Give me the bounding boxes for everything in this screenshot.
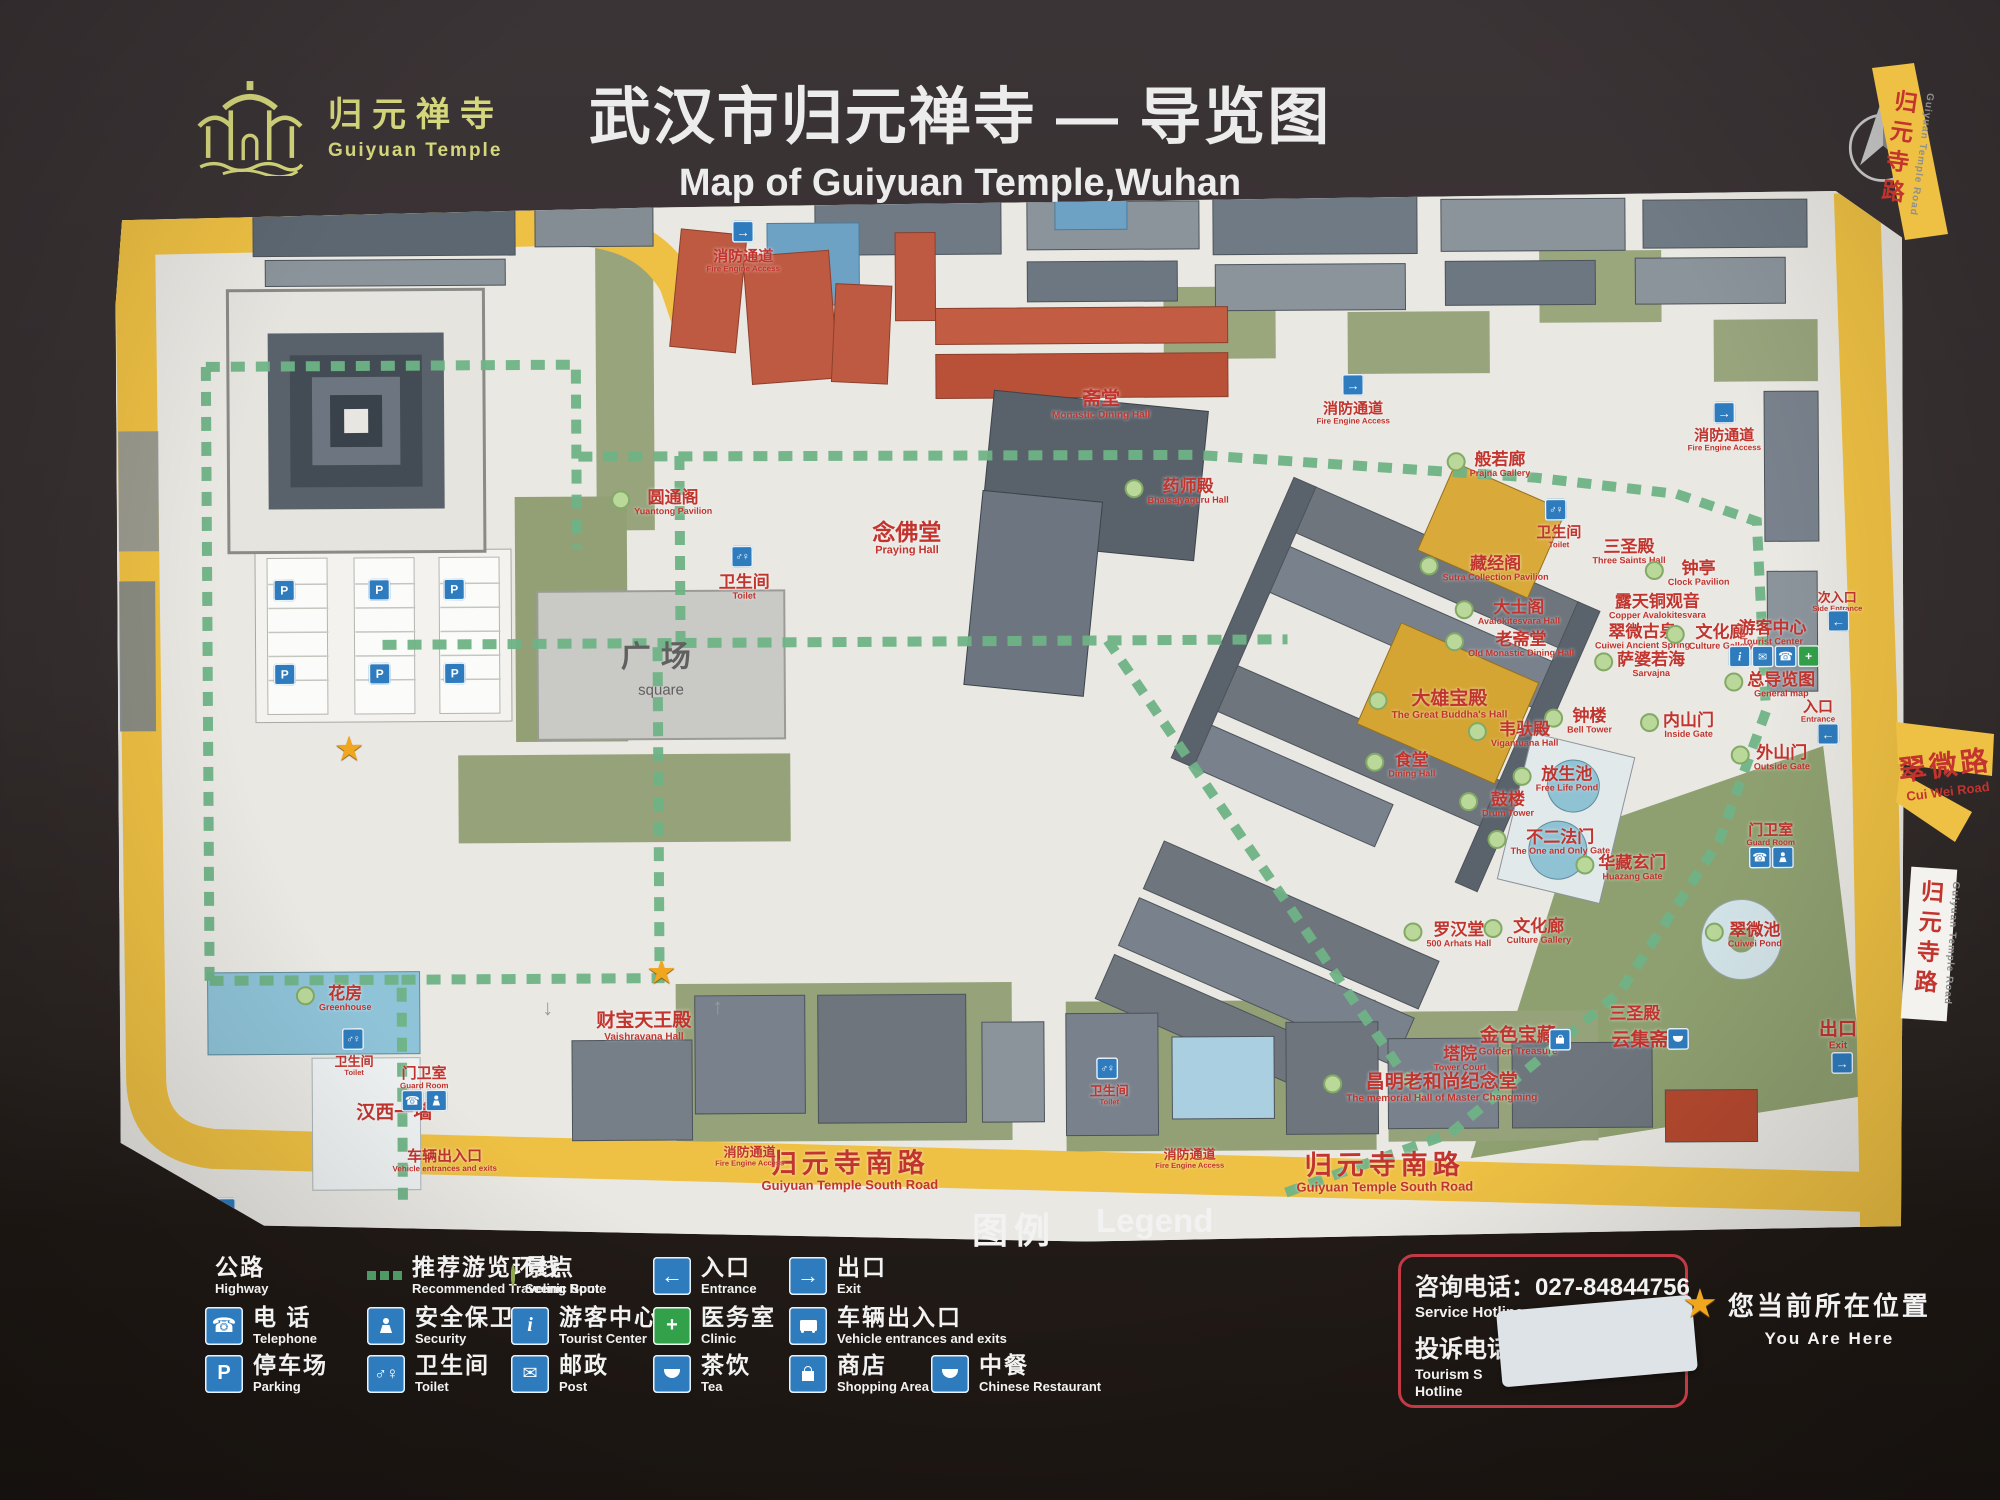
map-label-en: Fire Engine Access [1155, 1162, 1224, 1171]
walkway-arrow-icon: ↓ [542, 995, 553, 1021]
legend-item-en: Parking [253, 1380, 328, 1393]
title-cn: 武汉市归元禅寺 — 导览图 [560, 66, 1360, 156]
map-label: 般若廊Prajna Gallery [1447, 451, 1531, 480]
legend-item-zh: 入口 [701, 1256, 757, 1279]
map-label: 塔院Tower Court [1434, 1045, 1487, 1073]
you-are-here-star-icon: ★ [1682, 1286, 1718, 1322]
map-label-en: Bell Tower [1567, 726, 1612, 736]
legend-item-en: Highway [215, 1282, 268, 1295]
legend-item-spot: 景点Scenic Spot [511, 1256, 599, 1295]
legend-item-bus: 车辆出入口Vehicle entrances and exits [789, 1306, 1007, 1345]
temple-map-sign: 归元禅寺 Guiyuan Temple 武汉市归元禅寺 — 导览图 Map of… [0, 0, 2000, 1500]
map-label: 昌明老和尚纪念堂The memorial Hall of Master Chan… [1323, 1072, 1537, 1105]
map-label-zh: 门卫室 [400, 1066, 449, 1082]
entrance-icon: ← [653, 1257, 691, 1295]
map-label-en: Inside Gate [1663, 730, 1714, 740]
map-label: 大雄宝殿The Great Buddha's Hall [1368, 689, 1507, 721]
scenic-spot-dot-icon [1483, 919, 1502, 938]
legend-item-en: Exit [837, 1282, 887, 1295]
you-are-here-star-icon: ★ [334, 729, 365, 769]
map-label-zh: 总导览图 [1747, 671, 1815, 690]
legend-item-en: Post [559, 1380, 609, 1393]
map-label-en: Outside Gate [1754, 762, 1810, 772]
bus-icon [214, 1198, 236, 1220]
scenic-spot-dot-icon [1455, 600, 1474, 619]
wc-icon: ♂♀ [731, 546, 753, 568]
tea-icon [653, 1355, 691, 1393]
map-label: 消防通道Fire Engine Access [1687, 428, 1761, 453]
scenic-spot-dot-icon [1487, 830, 1506, 849]
map-label-zh: 入口 [1801, 700, 1835, 716]
post-icon: ✉ [1752, 645, 1774, 667]
scenic-spot-dot-icon [1459, 792, 1478, 811]
map-label-zh: 门卫室 [1746, 823, 1795, 839]
map-label-zh: 三圣殿 [1609, 1005, 1660, 1024]
entrance-icon: ← [1817, 723, 1839, 745]
map-label: 金色宝藏Golden Treasure [1478, 1026, 1557, 1058]
legend-item-highway: 公路Highway [205, 1256, 268, 1295]
legend-item-en: Security [415, 1332, 515, 1345]
map-label-en: Free Life Pond [1536, 784, 1599, 794]
map-label: 出口Exit [1819, 1020, 1857, 1052]
walkway-arrow-icon: ↑ [712, 994, 723, 1020]
scenic-spot-dot-icon [1645, 561, 1664, 580]
scenic-spot-dot-icon [1731, 745, 1750, 764]
title-en: Map of Guiyuan Temple,Wuhan [560, 162, 1360, 205]
wc-icon: ♂♀ [1096, 1057, 1118, 1079]
map-label: 文化廊Culture Gallery [1483, 918, 1571, 947]
map-label-zh: 萨婆若海 [1617, 651, 1685, 670]
map-label-en: Vaishravana Hall [596, 1032, 691, 1043]
map-label-en: Monastic Dining Hall [1052, 410, 1150, 421]
legend-item-en: Clinic [701, 1332, 776, 1345]
cuiwei-road-label: 翠微路 Cui Wei Road [1896, 739, 1995, 805]
map-label-en: The memorial Hall of Master Changming [1346, 1093, 1537, 1105]
wc-icon: ♂♀ [342, 1028, 364, 1050]
map-label-zh: 大士阁 [1478, 599, 1560, 618]
scenic-spot-dot-icon [611, 490, 630, 509]
map-label-zh: 圆通阁 [634, 489, 712, 508]
map-label-en: Toilet [1536, 541, 1581, 550]
legend-item-shop: 商店Shopping Area [789, 1354, 929, 1393]
map-label: 鼓楼Drum Tower [1459, 791, 1534, 820]
legend-item-zh: 卫生间 [415, 1354, 490, 1377]
map-label: 消防通道Fire Engine Access [706, 249, 780, 274]
restaurant-icon [1667, 1028, 1689, 1050]
map-label-en: Fire Engine Access [715, 1159, 784, 1168]
map-label-en: Toilet [1090, 1098, 1129, 1106]
parking-icon: P [205, 1355, 243, 1393]
map-label-en: Avalokitesvara Hall [1478, 617, 1560, 627]
map-label-en: 500 Arhats Hall [1427, 939, 1492, 949]
legend-item-en: Chinese Restaurant [979, 1380, 1101, 1393]
exit-icon: → [789, 1257, 827, 1295]
legend-item-post: ✉邮政Post [511, 1354, 609, 1393]
legend-item-zh: 商店 [837, 1354, 929, 1377]
map-label: 消防通道Fire Engine Access [1155, 1148, 1224, 1171]
route-icon [367, 1271, 402, 1280]
you-are-here-zh: 您当前所在位置 [1728, 1286, 1931, 1323]
map-label-zh: 游客中心 [1738, 619, 1806, 638]
map-label-en: Sarvajna [1617, 669, 1685, 679]
temple-logo: 归元禅寺 Guiyuan Temple [190, 72, 504, 176]
legend: 公路Highway推荐游览环线Recommended Traveling Rou… [205, 1256, 1385, 1426]
parking-icon: P [273, 579, 295, 601]
legend-item-clinic: +医务室Clinic [653, 1306, 776, 1345]
legend-item-entrance: ←入口Entrance [653, 1256, 757, 1295]
legend-item-en: Scenic Spot [525, 1282, 599, 1295]
map-label-en: Golden Treasure [1479, 1047, 1558, 1058]
scenic-spot-dot-icon [1705, 923, 1724, 942]
map-label-zh: 归元寺南路 [761, 1149, 938, 1179]
you-are-here: ★ 您当前所在位置 You Are Here [1682, 1286, 1931, 1349]
logo-cn: 归元禅寺 [328, 87, 504, 136]
scenic-spot-dot-icon [1575, 855, 1594, 874]
guard-icon [425, 1089, 447, 1111]
map-label-zh: 罗汉堂 [1426, 921, 1491, 940]
map-label-zh: 钟楼 [1567, 707, 1612, 726]
scenic-spot-dot-icon [1365, 753, 1384, 772]
exit-icon: → [1342, 374, 1364, 396]
map-label: 钟亭Clock Pavilion [1645, 560, 1730, 589]
map-label-en: Toilet [719, 592, 770, 602]
map-label-zh: 内山门 [1663, 712, 1714, 731]
map-label-en: Culture Gallery [1507, 936, 1572, 946]
map-label: 放生池Free Life Pond [1513, 765, 1599, 794]
map-label: 藏经阁Sutra Collection Pavilion [1419, 555, 1548, 584]
legend-item-zh: 茶饮 [701, 1354, 751, 1377]
shop-icon [1549, 1029, 1571, 1051]
legend-item-en: Vehicle entrances and exits [837, 1332, 1007, 1345]
map-label: 门卫室Guard Room [400, 1066, 449, 1091]
page-title: 武汉市归元禅寺 — 导览图 Map of Guiyuan Temple,Wuha… [560, 66, 1360, 205]
map-label-zh: 大雄宝殿 [1391, 689, 1507, 710]
map-label-zh: 华藏玄门 [1598, 854, 1666, 873]
security-icon [367, 1307, 405, 1345]
map-label-zh: 鼓楼 [1482, 791, 1534, 810]
scenic-spot-dot-icon [1640, 713, 1659, 732]
map-label: 卫生间Toilet [335, 1055, 374, 1077]
exit-icon: → [1713, 402, 1735, 424]
map-label-zh: 卫生间 [1536, 525, 1581, 541]
map-label-en: Toilet [335, 1069, 374, 1077]
legend-item-en: Telephone [253, 1332, 317, 1345]
map-label-en: Yuantong Pavilion [634, 507, 712, 517]
map-label-en: Dining Hall [1388, 770, 1435, 780]
legend-item-zh: 景点 [525, 1256, 599, 1279]
map-label: 翠微池Cuiwei Pond [1705, 921, 1782, 950]
service-hotline-number: 咨询电话：027-84844756 [1415, 1267, 1671, 1302]
scenic-spot-dot-icon [1513, 767, 1532, 786]
map-label-en: Guiyuan Temple South Road [761, 1178, 938, 1193]
wc-icon: ♂♀ [1545, 499, 1567, 521]
parking-icon: P [443, 578, 465, 600]
exit-icon: → [1831, 1052, 1853, 1074]
map-label-en: Cuiwei Pond [1728, 940, 1782, 950]
info-icon: i [511, 1307, 549, 1345]
legend-item-restaurant: 中餐Chinese Restaurant [931, 1354, 1101, 1393]
clinic-icon: + [1798, 645, 1820, 667]
map-label-en: Drum Tower [1482, 809, 1534, 819]
map-label: 大士阁Avalokitesvara Hall [1455, 599, 1560, 628]
legend-item-zh: 游客中心 [559, 1306, 659, 1329]
map-label: 外山门Outside Gate [1731, 744, 1810, 773]
map-label-en: Bhaisajyaguru Hall [1148, 496, 1229, 506]
legend-item-phone: ☎电 话Telephone [205, 1306, 317, 1345]
map-label-zh: 斋堂 [1052, 389, 1150, 410]
legend-heading: 图例 Legend [972, 1202, 1213, 1254]
map-label-zh: 文化廊 [1506, 918, 1571, 937]
legend-item-zh: 中餐 [979, 1354, 1101, 1377]
map-label: 卫生间Toilet [1090, 1084, 1129, 1106]
map-label-en: Guiyuan Temple South Road [1296, 1180, 1473, 1195]
legend-item-zh: 车辆出入口 [837, 1306, 1007, 1329]
map-label-zh: 归元寺南路 [1296, 1151, 1473, 1181]
scenic-spot-dot-icon [1323, 1074, 1342, 1093]
map-label: 门卫室Guard Room [1746, 823, 1795, 848]
parking-icon: P [369, 663, 391, 685]
parking-icon: P [444, 662, 466, 684]
map-label: 露天铜观音Copper Avalokitesvara [1609, 593, 1706, 622]
map-label: 财宝天王殿Vaishravana Hall [596, 1011, 691, 1043]
scenic-spot-dot-icon [1445, 632, 1464, 651]
map-label-zh: 卫生间 [719, 573, 770, 592]
legend-item-info: i游客中心Tourist Center [511, 1306, 659, 1345]
map-label-zh: 花房 [319, 985, 372, 1004]
phone-icon: ☎ [205, 1307, 243, 1345]
map-label-zh: 般若廊 [1470, 451, 1531, 470]
legend-item-en: Tourist Center [559, 1332, 659, 1345]
guiyuan-temple-road-label-bottom: 归元寺路 Guiyuan Temple Road [1906, 879, 1962, 1006]
spot-icon [511, 1267, 515, 1285]
scenic-spot-dot-icon [1594, 652, 1613, 671]
map-label: 卫生间Toilet [719, 573, 770, 601]
map-label: 药师殿Bhaisajyaguru Hall [1125, 478, 1229, 507]
map-label-zh: 药师殿 [1148, 478, 1229, 497]
legend-item-zh: 电 话 [253, 1306, 317, 1329]
parking-icon: P [274, 663, 296, 685]
legend-item-zh: 停车场 [253, 1354, 328, 1377]
clinic-icon: + [653, 1307, 691, 1345]
legend-item-zh: 公路 [215, 1256, 268, 1279]
map-label-zh: 外山门 [1754, 744, 1810, 763]
map-label: 车辆出入口Vehicle entrances and exits [392, 1149, 497, 1174]
legend-item-wc: ♂♀卫生间Toilet [367, 1354, 490, 1393]
scenic-spot-dot-icon [1468, 722, 1487, 741]
map-label-zh: 食堂 [1388, 751, 1435, 770]
map-label: 斋堂Monastic Dining Hall [1052, 389, 1151, 421]
map-label: 萨婆若海Sarvajna [1594, 651, 1685, 680]
square-label: 广场 square [621, 631, 701, 698]
map-label: 韦驮殿Vigantuana Hall [1468, 721, 1559, 750]
restaurant-icon [931, 1355, 969, 1393]
map-label: 罗汉堂500 Arhats Hall [1403, 921, 1491, 950]
shop-icon [789, 1355, 827, 1393]
map-label: 内山门Inside Gate [1640, 712, 1714, 741]
map-label: 三圣殿 [1609, 1005, 1660, 1024]
map-label: 花房Greenhouse [296, 985, 372, 1014]
legend-item-en: Toilet [415, 1380, 490, 1393]
map-label-zh: 财宝天王殿 [596, 1011, 691, 1032]
map-label: 消防通道Fire Engine Access [1316, 401, 1390, 426]
entrance-icon: ← [1827, 610, 1849, 632]
map-label: 归元寺南路Guiyuan Temple South Road [761, 1149, 938, 1193]
map-label: 入口Entrance [1801, 700, 1835, 725]
map-label-zh: 三圣殿 [1592, 538, 1665, 557]
scenic-spot-dot-icon [1724, 672, 1743, 691]
map-label-en: Sutra Collection Pavilion [1443, 573, 1549, 583]
exit-icon: → [732, 221, 754, 243]
map-label-zh: 塔院 [1434, 1045, 1486, 1064]
map-label: 归元寺南路Guiyuan Temple South Road [1296, 1151, 1473, 1195]
bus-icon [789, 1307, 827, 1345]
scenic-spot-dot-icon [1447, 452, 1466, 471]
phone-icon: ☎ [1749, 846, 1771, 868]
parking-icon: P [368, 579, 390, 601]
map-label-en: Copper Avalokitesvara [1609, 611, 1706, 621]
legend-item-zh: 邮政 [559, 1354, 609, 1377]
scenic-spot-dot-icon [1419, 556, 1438, 575]
legend-item-exit: →出口Exit [789, 1256, 887, 1295]
scenic-spot-dot-icon [1666, 625, 1685, 644]
map-label-en: Fire Engine Access [1688, 444, 1762, 453]
scenic-spot-dot-icon [1368, 691, 1387, 710]
map-label: 卫生间Toilet [1536, 525, 1581, 550]
map-label-en: Greenhouse [319, 1003, 372, 1013]
map-label: 消防通道Fire Engine Access [715, 1145, 784, 1168]
scenic-spot-dot-icon [1125, 479, 1144, 498]
map-label-zh: 金色宝藏 [1478, 1026, 1557, 1047]
logo-en: Guiyuan Temple [328, 140, 504, 162]
map-label-en: Clock Pavilion [1668, 578, 1730, 588]
guard-icon [1772, 846, 1794, 868]
map-label-en: The Great Buddha's Hall [1392, 710, 1508, 722]
legend-item-en: Tea [701, 1380, 751, 1393]
hotline-box: 咨询电话：027-84844756 Service Hotline 投诉电话 T… [1398, 1254, 1688, 1408]
map-label-en: Vigantuana Hall [1491, 739, 1558, 749]
info-icon: i [1729, 645, 1751, 667]
map-label-zh: 钟亭 [1668, 560, 1730, 579]
legend-item-zh: 安全保卫 [415, 1306, 515, 1329]
map-label-zh: 韦驮殿 [1491, 721, 1558, 740]
map-label: 圆通阁Yuantong Pavilion [611, 489, 712, 518]
map-label-en: Exit [1819, 1041, 1857, 1052]
legend-item-zh: 出口 [837, 1256, 887, 1279]
legend-item-security: 安全保卫Security [367, 1306, 515, 1345]
legend-item-zh: 医务室 [701, 1306, 776, 1329]
scenic-spot-dot-icon [296, 986, 315, 1005]
map-label-en: Huazang Gate [1598, 872, 1666, 882]
map-label: 食堂Dining Hall [1365, 751, 1435, 780]
map-label-en: Old Monastic Dining Hall [1468, 649, 1574, 659]
map-label: 不二法门The One and Only Gate [1487, 828, 1610, 857]
map-label: 老斋堂Old Monastic Dining Hall [1445, 631, 1574, 660]
legend-item-parking: P停车场Parking [205, 1354, 328, 1393]
map-label-zh: 放生池 [1536, 765, 1599, 784]
post-icon: ✉ [511, 1355, 549, 1393]
map-label: 总导览图General map [1724, 671, 1815, 700]
scenic-spot-dot-icon [1403, 922, 1422, 941]
map-label: 华藏玄门Huazang Gate [1575, 854, 1666, 883]
you-are-here-star-icon: ★ [646, 952, 677, 992]
phone-icon: ☎ [401, 1090, 423, 1112]
map-label-zh: 昌明老和尚纪念堂 [1346, 1072, 1537, 1094]
map-label-zh: 出口 [1819, 1020, 1857, 1041]
you-are-here-en: You Are Here [1728, 1329, 1931, 1349]
map-label-en: Vehicle entrances and exits [392, 1165, 497, 1174]
map-label-en: Fire Engine Access [1316, 417, 1390, 426]
temple-map: 广场 square 消防通道Fire Engine Access圆通阁Yuant… [115, 191, 1908, 1248]
wc-icon: ♂♀ [367, 1355, 405, 1393]
map-label: 云集斋 [1611, 1031, 1668, 1052]
map-label-zh: 翠微池 [1728, 921, 1782, 940]
map-label: 念佛堂Praying Hall [872, 520, 941, 557]
map-label-zh: 云集斋 [1611, 1031, 1668, 1052]
legend-item-en: Entrance [701, 1282, 757, 1295]
legend-item-tea: 茶饮Tea [653, 1354, 751, 1393]
map-label-zh: 念佛堂 [872, 520, 941, 545]
map-label-en: Praying Hall [872, 545, 941, 557]
legend-item-en: Shopping Area [837, 1380, 929, 1393]
map-label-en: Prajna Gallery [1470, 469, 1531, 479]
phone-icon: ☎ [1775, 645, 1797, 667]
map-label-en: Fire Engine Access [706, 265, 780, 274]
temple-gate-icon [190, 72, 310, 176]
map-label: 游客中心Tourist Center [1738, 619, 1806, 647]
